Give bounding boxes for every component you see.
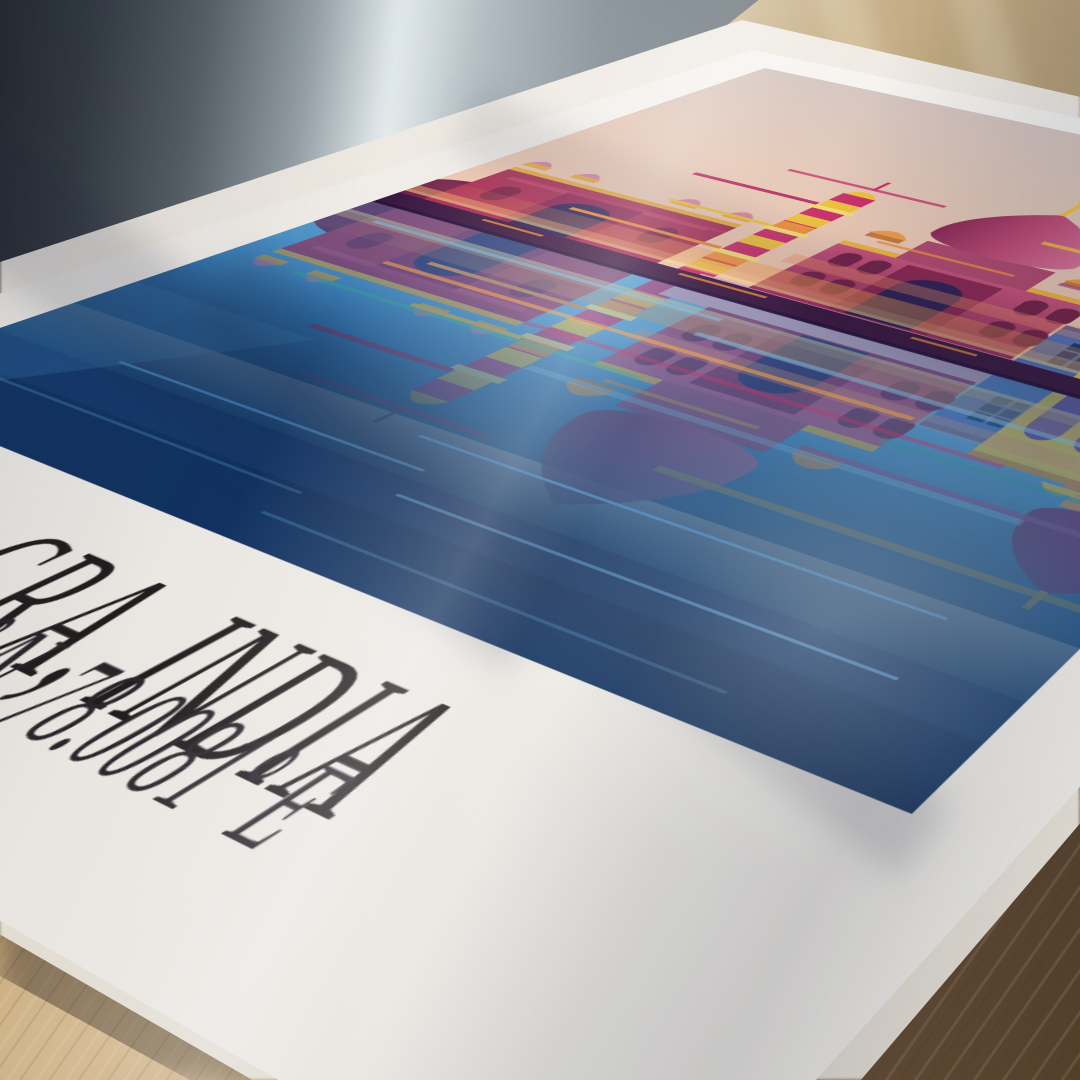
poster-mockup-photo: GRA, INDIA ° N, 78.0081° E (0, 0, 1080, 1080)
